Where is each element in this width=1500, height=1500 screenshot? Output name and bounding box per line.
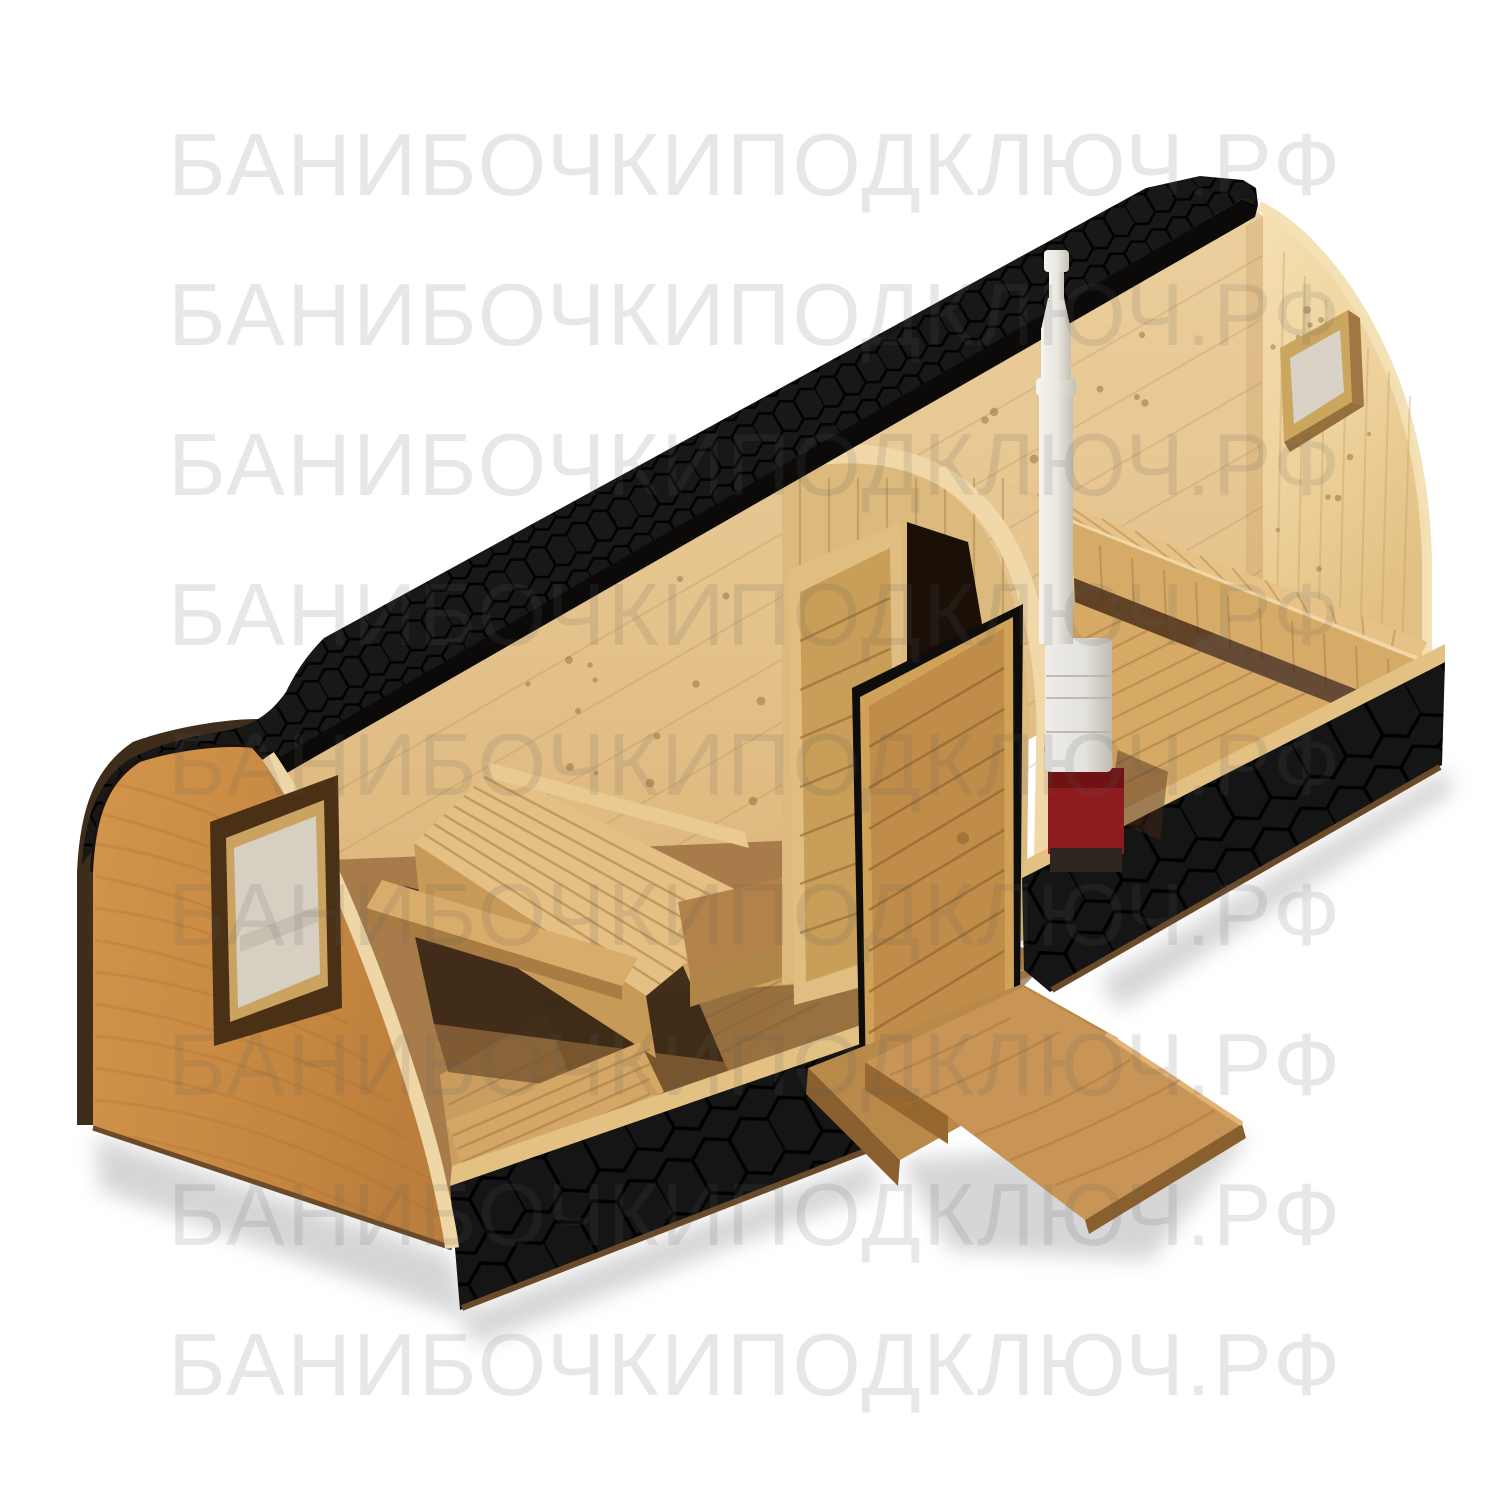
svg-text:БАНИБОЧКИПОДКЛЮЧ.РФ: БАНИБОЧКИПОДКЛЮЧ.РФ xyxy=(168,565,1340,664)
svg-text:БАНИБОЧКИПОДКЛЮЧ.РФ: БАНИБОЧКИПОДКЛЮЧ.РФ xyxy=(168,1315,1340,1414)
svg-text:БАНИБОЧКИПОДКЛЮЧ.РФ: БАНИБОЧКИПОДКЛЮЧ.РФ xyxy=(168,1015,1340,1114)
svg-text:БАНИБОЧКИПОДКЛЮЧ.РФ: БАНИБОЧКИПОДКЛЮЧ.РФ xyxy=(168,415,1340,514)
svg-text:БАНИБОЧКИПОДКЛЮЧ.РФ: БАНИБОЧКИПОДКЛЮЧ.РФ xyxy=(168,715,1340,814)
svg-text:БАНИБОЧКИПОДКЛЮЧ.РФ: БАНИБОЧКИПОДКЛЮЧ.РФ xyxy=(168,1165,1340,1264)
svg-text:БАНИБОЧКИПОДКЛЮЧ.РФ: БАНИБОЧКИПОДКЛЮЧ.РФ xyxy=(168,865,1340,964)
svg-text:БАНИБОЧКИПОДКЛЮЧ.РФ: БАНИБОЧКИПОДКЛЮЧ.РФ xyxy=(168,115,1340,214)
svg-text:БАНИБОЧКИПОДКЛЮЧ.РФ: БАНИБОЧКИПОДКЛЮЧ.РФ xyxy=(168,265,1340,364)
